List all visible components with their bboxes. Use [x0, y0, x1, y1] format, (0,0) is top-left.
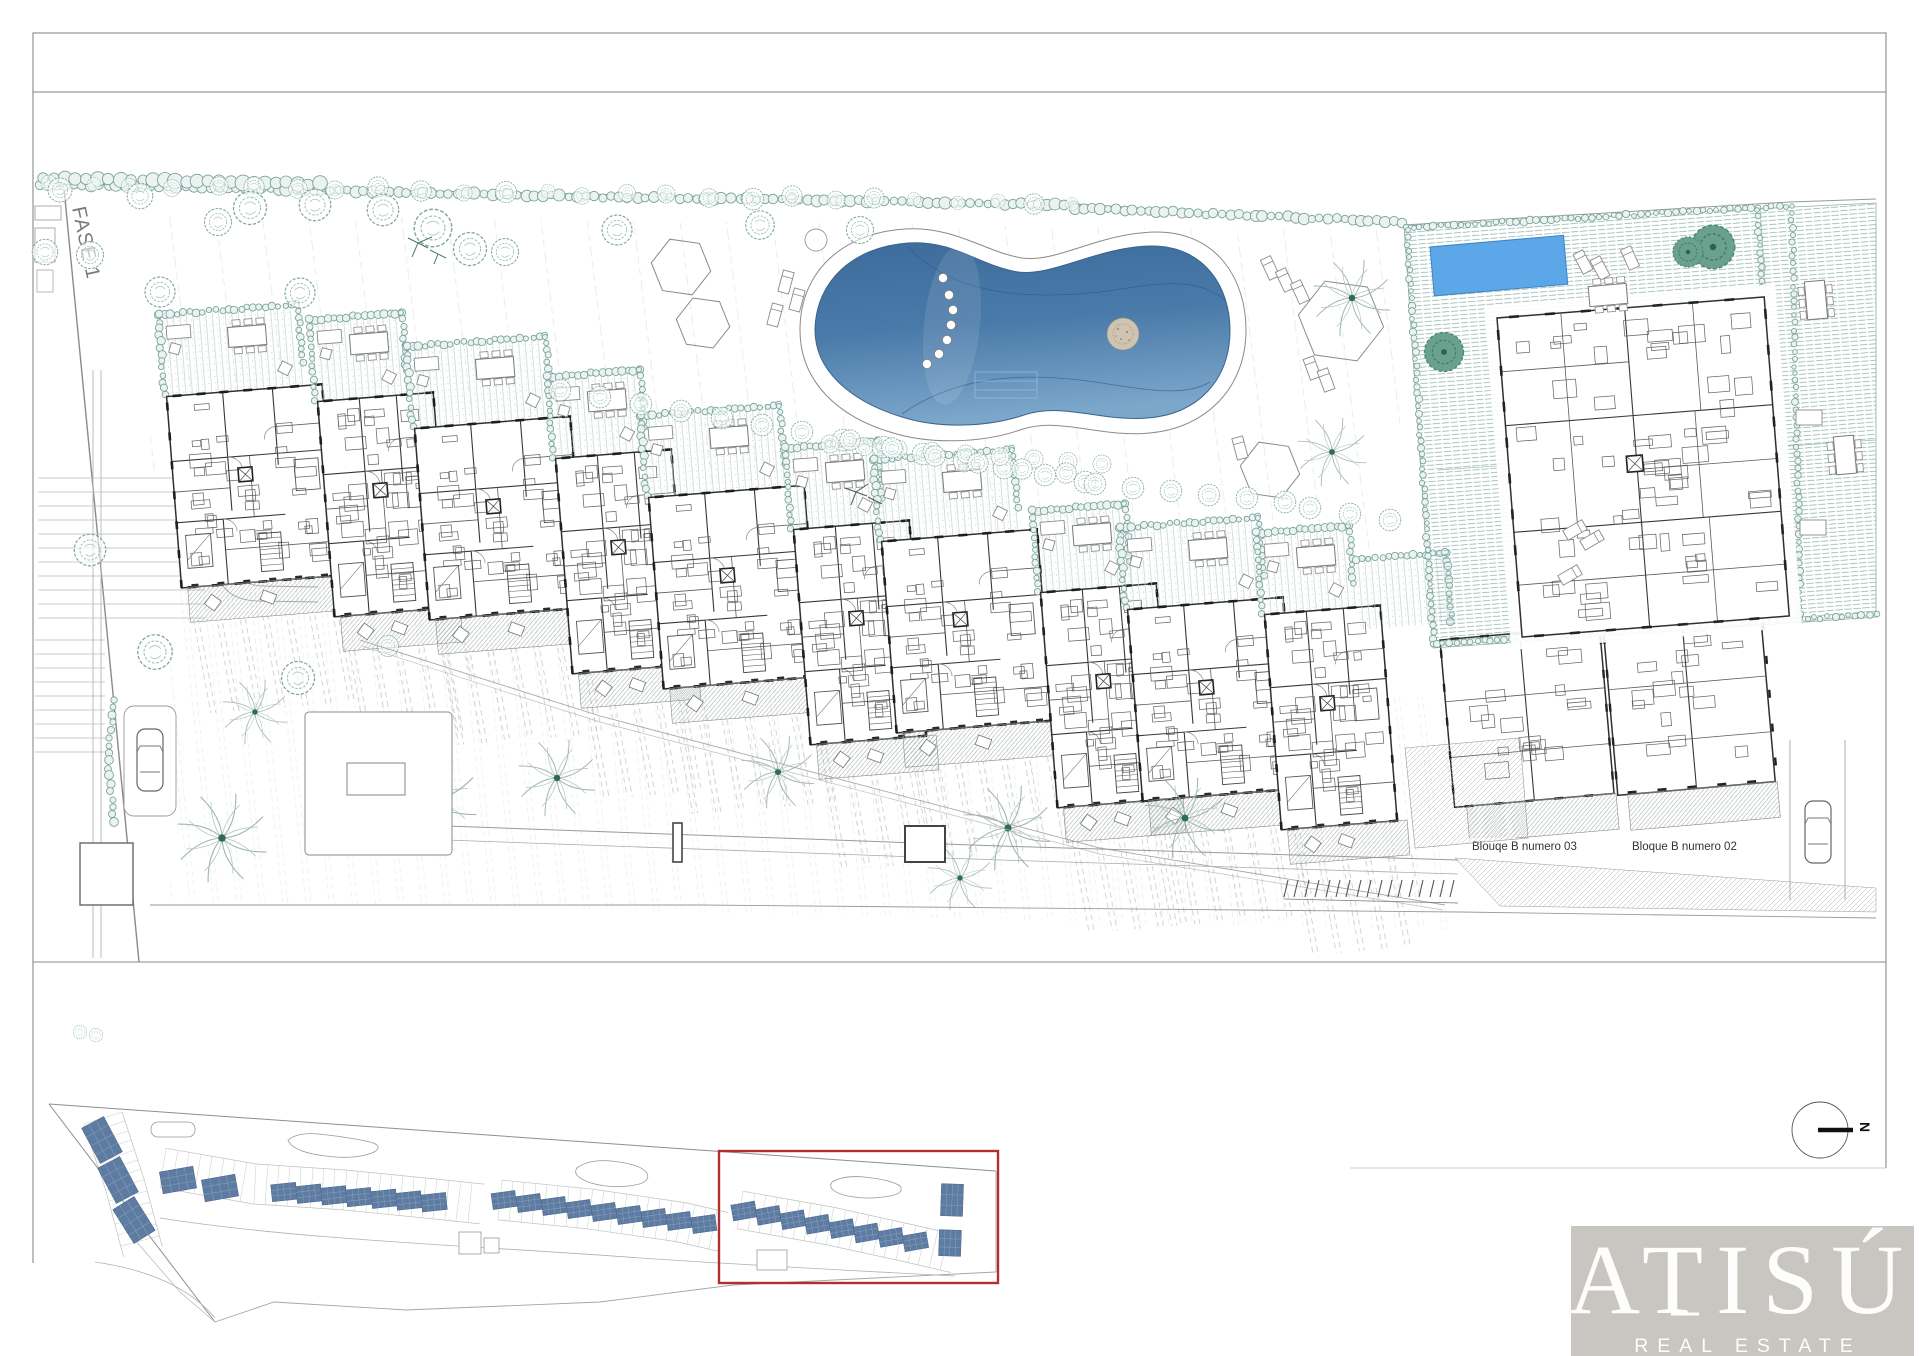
svg-text:N: N	[1857, 1122, 1873, 1132]
svg-text:ATISÚ: ATISÚ	[1568, 1224, 1916, 1335]
svg-text:Blouqe B numero 03: Blouqe B numero 03	[1472, 841, 1577, 853]
svg-text:Bloque B numero 02: Bloque B numero 02	[1632, 841, 1737, 853]
svg-text:REAL ESTATE: REAL ESTATE	[1634, 1335, 1862, 1356]
